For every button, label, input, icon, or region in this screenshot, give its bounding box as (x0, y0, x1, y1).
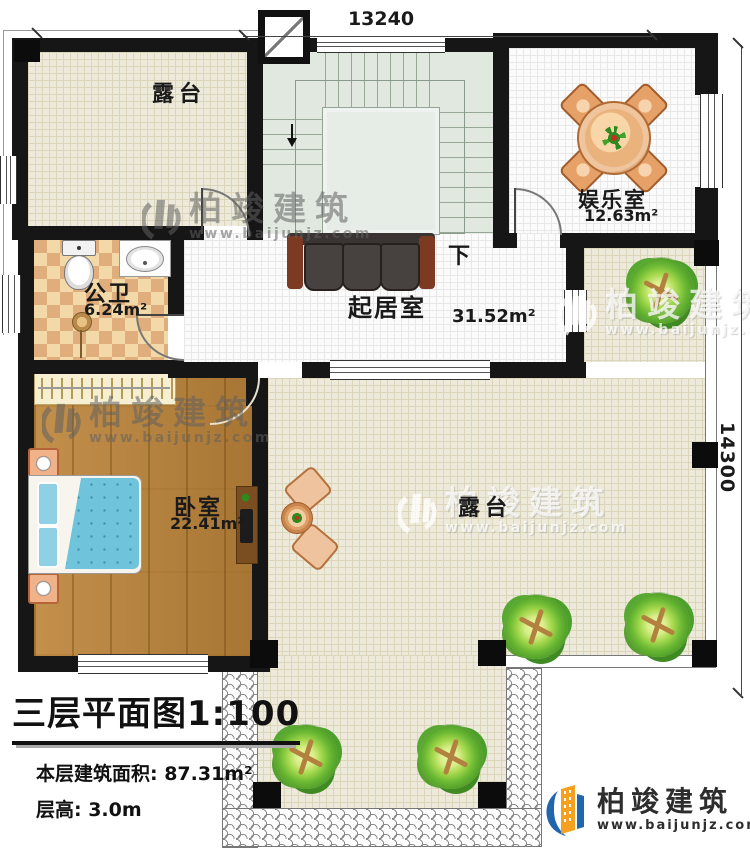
wall (490, 362, 586, 378)
dimension-top: 13240 (336, 8, 426, 30)
table-plant (602, 126, 626, 150)
window (317, 36, 445, 53)
floor-plan: 柏竣建筑 www.baijunjz.com 柏竣建筑 www.baijunjz.… (0, 0, 750, 851)
title-block: 三层平面图1:100 本层建筑面积: 87.31m² 层高: 3.0m (12, 686, 272, 822)
sink (126, 246, 164, 272)
pillow (37, 482, 59, 526)
wall (12, 38, 28, 240)
stairs-landing (322, 107, 440, 235)
brand-logo-icon (542, 782, 588, 838)
tree (504, 595, 568, 659)
round-table (577, 101, 651, 175)
room-label-living: 起居室 (348, 288, 426, 323)
plan-title-text: 三层平面图 (12, 694, 187, 734)
wall (695, 33, 718, 95)
wall (18, 656, 78, 672)
column (478, 782, 506, 808)
nightstand (28, 573, 59, 604)
room-area-bathroom: 6.24m² (84, 300, 147, 319)
sheet-fold (59, 478, 85, 569)
brand-url: www.baijunjz.com (597, 818, 750, 833)
brand-logo: 柏竣建筑 www.baijunjz.com (542, 782, 750, 838)
window (330, 360, 490, 380)
sofa (287, 233, 435, 291)
window (564, 290, 587, 332)
bed (28, 475, 142, 574)
wall (493, 233, 517, 248)
plan-height-line: 层高: 3.0m (36, 795, 272, 822)
wall (493, 48, 509, 248)
dimension-line-right (741, 45, 742, 695)
parapet-line-top (3, 30, 258, 31)
room-label-terrace-right: 露台 (458, 490, 512, 522)
column (692, 442, 718, 468)
shower-hose (80, 330, 82, 358)
plan-scale: 1:100 (187, 694, 300, 734)
room-area-bedroom: 22.41m² (170, 514, 244, 533)
door-leaf (201, 188, 203, 234)
wall (302, 362, 330, 378)
column (694, 240, 719, 266)
window (700, 94, 723, 188)
roof-band-right (506, 668, 542, 810)
bistro-table (281, 502, 313, 534)
column (250, 640, 278, 668)
stairs-down-label: 下 (448, 238, 470, 270)
wall (247, 52, 263, 240)
flue-box (258, 10, 310, 64)
tree (419, 725, 483, 789)
wall (566, 233, 584, 293)
room-area-living: 31.52m² (452, 306, 536, 327)
column (14, 40, 40, 62)
room-label-terrace-top: 露台 (152, 76, 206, 108)
wall (18, 360, 184, 374)
wall (566, 330, 584, 363)
window (2, 275, 21, 333)
column (478, 640, 506, 666)
room-area-entertainment: 12.63m² (584, 206, 658, 225)
tree (628, 258, 694, 324)
stairs-down-arrow-icon (291, 124, 293, 144)
wall (12, 226, 204, 240)
plan-title: 三层平面图1:100 (12, 686, 300, 745)
wall (12, 38, 262, 52)
dimension-line-top (243, 36, 653, 37)
dimension-right: 14300 (716, 422, 738, 493)
plan-area-line: 本层建筑面积: 87.31m² (36, 759, 272, 786)
wardrobe-pole (38, 387, 170, 389)
column (692, 640, 717, 667)
brand-name: 柏竣建筑 (597, 787, 750, 818)
window (0, 156, 17, 204)
dimension-tick (732, 37, 743, 48)
door-leaf (514, 188, 516, 233)
window (78, 654, 208, 674)
tree (626, 593, 690, 657)
toilet (62, 240, 96, 256)
wall (168, 362, 246, 378)
pillow (37, 526, 59, 568)
desk-plant (241, 493, 250, 502)
bedroom-wardrobe (34, 373, 176, 405)
